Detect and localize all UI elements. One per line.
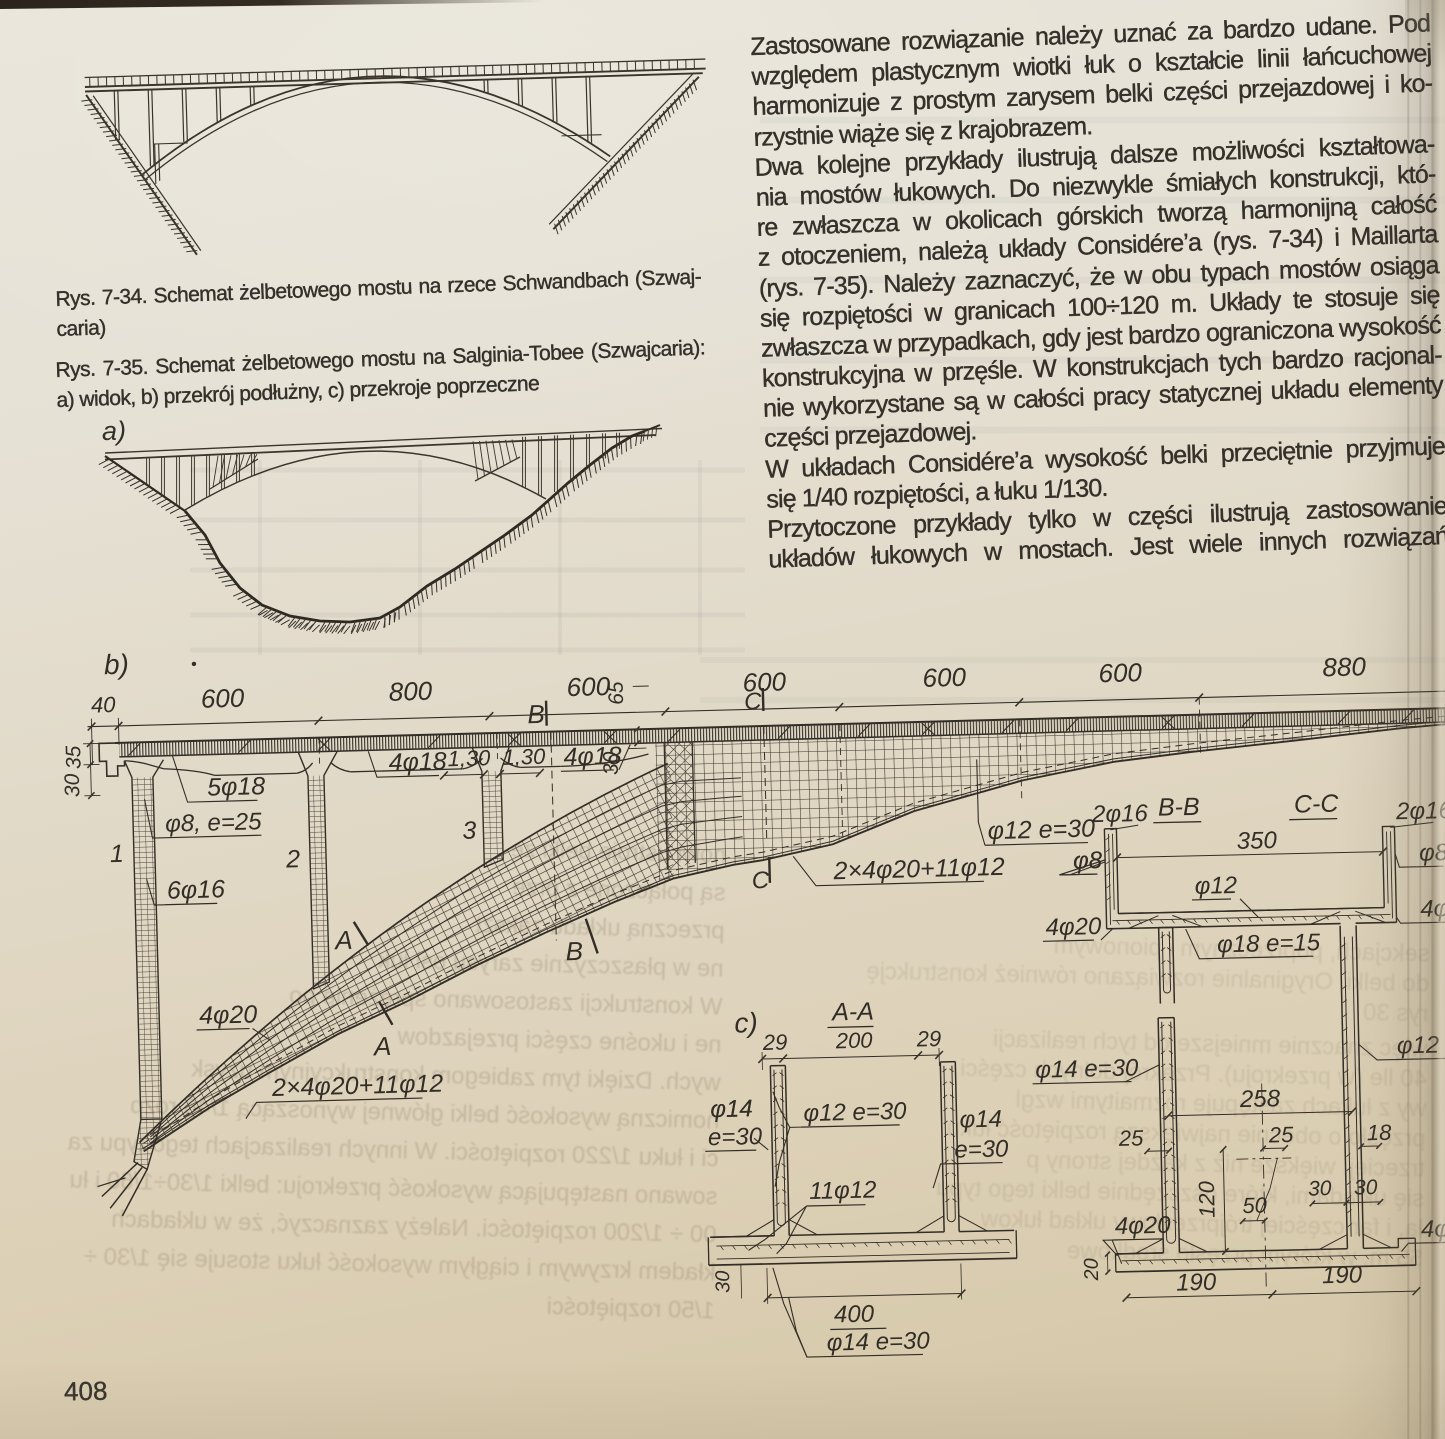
svg-text:φ14: φ14 [710, 1095, 753, 1123]
svg-text:30: 30 [61, 773, 85, 797]
svg-text:120: 120 [1194, 1180, 1220, 1218]
svg-text:A-A: A-A [830, 997, 874, 1026]
svg-text:φ8: φ8 [1073, 847, 1103, 875]
svg-text:190: 190 [1176, 1269, 1217, 1297]
svg-text:b): b) [104, 649, 130, 681]
svg-text:258: 258 [1239, 1085, 1281, 1113]
svg-text:6φ16: 6φ16 [167, 875, 226, 905]
svg-text:5φ18: 5φ18 [207, 772, 266, 802]
svg-text:2×4φ20+11φ12: 2×4φ20+11φ12 [832, 853, 1005, 886]
svg-text:φ12: φ12 [1194, 872, 1237, 900]
svg-text:1,30: 1,30 [447, 745, 491, 771]
svg-text:φ14: φ14 [959, 1106, 1002, 1134]
svg-text:30: 30 [712, 1270, 734, 1293]
svg-text:4φ20: 4φ20 [1115, 1212, 1172, 1240]
svg-text:φ8, e=25: φ8, e=25 [165, 808, 263, 838]
svg-text:C: C [744, 688, 763, 715]
svg-text:φ14 e=30: φ14 e=30 [826, 1327, 930, 1356]
svg-text:29: 29 [915, 1026, 941, 1052]
svg-text:4φ20: 4φ20 [1045, 913, 1102, 941]
svg-text:C: C [751, 867, 770, 894]
svg-text:29: 29 [762, 1029, 788, 1055]
svg-text:600: 600 [200, 683, 245, 714]
svg-text:φ12 e=30: φ12 e=30 [987, 814, 1095, 845]
svg-text:600: 600 [922, 662, 967, 693]
svg-text:A: A [333, 925, 353, 955]
svg-text:1,30: 1,30 [502, 744, 546, 770]
svg-text:2φ16: 2φ16 [1091, 800, 1149, 828]
svg-text:3: 3 [462, 817, 477, 845]
svg-text:2: 2 [285, 845, 301, 873]
svg-text:4φ20: 4φ20 [199, 1000, 258, 1030]
svg-text:20: 20 [1081, 1258, 1104, 1282]
svg-text:4φ18: 4φ18 [563, 742, 622, 772]
svg-text:65: 65 [605, 681, 629, 705]
svg-text:200: 200 [835, 1027, 874, 1053]
svg-text:35: 35 [62, 745, 86, 769]
svg-text:2×4φ20+11φ12: 2×4φ20+11φ12 [271, 1070, 444, 1103]
svg-text:B: B [565, 936, 583, 966]
svg-text:B-B: B-B [1158, 793, 1200, 822]
svg-text:25: 25 [1268, 1122, 1295, 1148]
svg-text:800: 800 [388, 676, 433, 707]
svg-text:e=30: e=30 [954, 1135, 1009, 1163]
svg-text:φ12 e=30: φ12 e=30 [803, 1098, 907, 1127]
svg-text:4φ18: 4φ18 [388, 747, 447, 777]
svg-text:1: 1 [110, 840, 125, 868]
svg-text:B: B [527, 699, 545, 729]
svg-text:a): a) [102, 416, 126, 446]
svg-text:e=30: e=30 [708, 1123, 763, 1151]
svg-text:600: 600 [1098, 657, 1143, 688]
svg-text:25: 25 [1118, 1125, 1145, 1151]
svg-text:50: 50 [1242, 1192, 1268, 1218]
svg-text:c): c) [734, 1007, 758, 1039]
svg-text:φ14 e=30: φ14 e=30 [1035, 1054, 1139, 1083]
svg-text:C-C: C-C [1294, 790, 1340, 819]
svg-text:30: 30 [1308, 1177, 1332, 1201]
svg-text:A: A [372, 1031, 392, 1061]
svg-text:11φ12: 11φ12 [809, 1176, 877, 1205]
svg-text:40: 40 [91, 692, 117, 718]
svg-text:φ18 e=15: φ18 e=15 [1217, 929, 1321, 958]
svg-text:400: 400 [834, 1301, 875, 1329]
svg-text:350: 350 [1236, 827, 1277, 855]
